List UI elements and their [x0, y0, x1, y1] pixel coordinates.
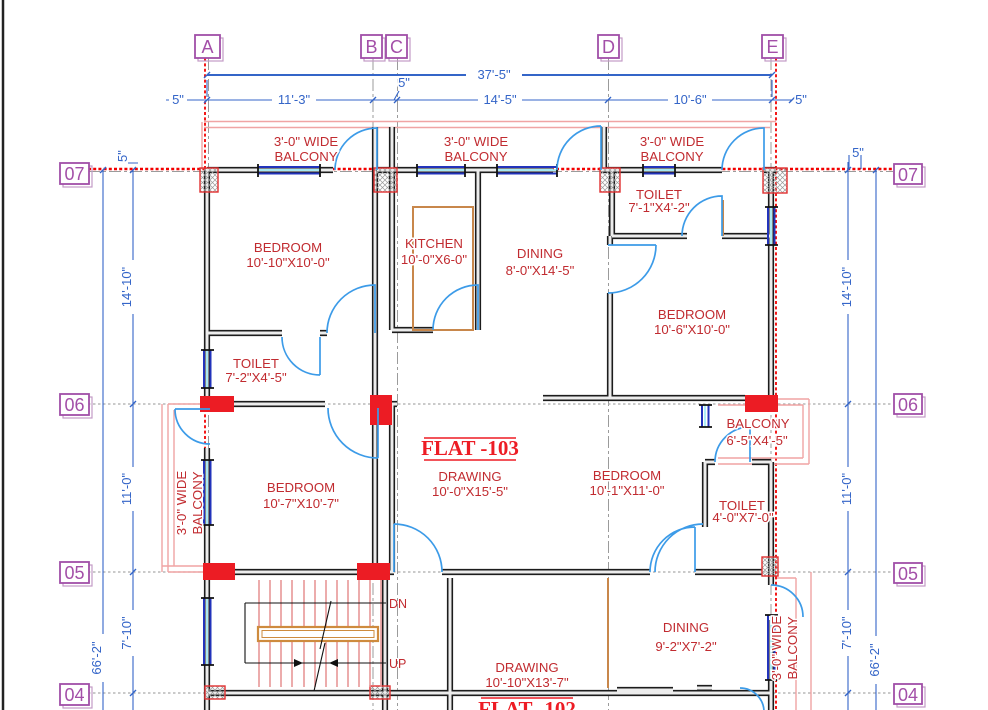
dim-10-6: 10'-6": [673, 92, 707, 107]
balcony-left-label2: BALCONY: [190, 471, 205, 534]
balcony-top-3-label2: BALCONY: [640, 149, 703, 164]
toilet-top-right-size: 7'-1"X4'-2": [628, 200, 690, 215]
column-d07-hatched: [600, 168, 620, 192]
balcony-top-1-label: 3'-0" WIDE: [274, 134, 339, 149]
toilet-left-name: TOILET: [233, 356, 279, 371]
flat-103-label: FLAT -103: [421, 436, 519, 460]
stair-arrow-left: [329, 659, 338, 667]
dining-top-name: DINING: [517, 246, 563, 261]
dim-left-7-10: 7'-10": [119, 616, 134, 650]
column-b04-hatched: [370, 686, 390, 699]
grid-label-04-left: 04: [64, 685, 84, 705]
dim-11-3: 11'-3": [278, 92, 311, 107]
toilet-mid-right-size: 4'-0"X7'-0": [712, 510, 774, 525]
stair-break-line: [314, 601, 331, 691]
bedroom-mid-left-name: BEDROOM: [267, 480, 335, 495]
bedroom-mid-left-size: 10'-7"X10'-7": [263, 496, 339, 511]
grid-label-a: A: [201, 37, 213, 57]
grid-marker-a: A: [195, 35, 223, 61]
column-balcony: [745, 395, 778, 412]
balcony-bottom-right-label: 3'-0" WIDE: [769, 616, 784, 681]
grid-label-e: E: [766, 37, 778, 57]
balcony-left-label: 3'-0" WIDE: [174, 471, 189, 536]
column-a07-hatched: [200, 168, 218, 192]
dim-5in-right-side: 5": [852, 145, 864, 160]
dim-5in-right: 5": [795, 92, 807, 107]
stair-handrail: [258, 627, 378, 641]
dining-top-size: 8'-0"X14'-5": [506, 263, 575, 278]
dim-5in-left-side: 5": [115, 150, 130, 162]
stair-up-label: UP: [389, 657, 406, 671]
grid-label-d: D: [602, 37, 615, 57]
column-e07-hatched: [763, 168, 787, 193]
grid-label-04-right: 04: [898, 685, 918, 705]
balcony-top-3-label: 3'-0" WIDE: [640, 134, 705, 149]
dim-right-14-10: 14'-10": [839, 266, 854, 307]
dim-right-7-10: 7'-10": [839, 616, 854, 650]
grid-label-07-right: 07: [898, 165, 918, 185]
bedroom-top-left-size: 10'-10"X10'-0": [246, 255, 330, 270]
bedroom-right-name: BEDROOM: [658, 307, 726, 322]
bedroom-mid-right-size: 10'-1"X11'-0": [589, 483, 664, 498]
grid-marker-row-right: 07 06 05 04: [894, 164, 925, 707]
stair-arrow-right: [294, 659, 303, 667]
floor-plan-canvas: DN UP 37'-5" 5" 11'-3" 5" 14'-5" 10'-6" …: [0, 0, 988, 710]
grid-label-c: C: [390, 37, 403, 57]
bedroom-mid-right-name: BEDROOM: [593, 468, 661, 483]
dim-overall-width: 37'-5": [477, 67, 511, 82]
grid-marker-row-left: 07 06 05 04: [60, 163, 92, 708]
dim-5in-left: 5": [172, 92, 184, 107]
grid-label-05-left: 05: [64, 563, 84, 583]
grid-label-b: B: [365, 37, 377, 57]
dim-left-14-10: 14'-10": [119, 266, 134, 307]
bedroom-right-size: 10'-6"X10'-0": [654, 322, 730, 337]
column-a04-hatched: [205, 686, 225, 699]
balcony-top-1-label2: BALCONY: [274, 149, 337, 164]
balcony-bottom-right-label2: BALCONY: [785, 616, 800, 679]
drawing-102-name: DRAWING: [495, 660, 558, 675]
column-b05: [357, 563, 390, 580]
grid-label-07-left: 07: [64, 164, 84, 184]
grid-marker-d: D: [598, 35, 622, 61]
balcony-top-2-label2: BALCONY: [444, 149, 507, 164]
dim-left-11-0: 11'-0": [119, 473, 134, 506]
dining-bottom-size: 9'-2"X7'-2": [655, 639, 717, 654]
dim-right-11-0: 11'-0": [839, 473, 854, 506]
toilet-left-size: 7'-2"X4'-5": [225, 370, 287, 385]
dim-14-5: 14'-5": [483, 92, 517, 107]
drawing-102-size: 10'-10"X13'-7": [485, 675, 569, 690]
grid-marker-b: B: [361, 35, 385, 61]
grid-label-05-right: 05: [898, 564, 918, 584]
kitchen-size: 10'-0"X6-0": [401, 252, 467, 267]
dim-left-overall-height: 66'-2": [89, 641, 104, 675]
column-a05: [203, 563, 235, 580]
drawing-103-size: 10'-0"X15'-5": [432, 484, 508, 499]
bedroom-top-left-name: BEDROOM: [254, 240, 322, 255]
column-bc07-hatched: [374, 168, 397, 192]
room-labels: 3'-0" WIDE BALCONY 3'-0" WIDE BALCONY 3'…: [174, 134, 800, 710]
grid-marker-c: C: [386, 35, 410, 61]
floor-plan-drawing: DN UP 37'-5" 5" 11'-3" 5" 14'-5" 10'-6" …: [0, 0, 988, 710]
column-b06: [370, 395, 392, 425]
grid-label-06-right: 06: [898, 395, 918, 415]
flat-102-label: FLAT -102: [478, 697, 576, 710]
dim-5in-bc: 5": [398, 75, 410, 90]
kitchen-name: KITCHEN: [405, 236, 463, 251]
column-e05-hatched: [762, 557, 778, 576]
drawing-103-name: DRAWING: [438, 469, 501, 484]
counter-outline: [413, 207, 473, 330]
balcony-top-2-label: 3'-0" WIDE: [444, 134, 509, 149]
balcony-right-size: 6'-5"X4'-5": [726, 433, 788, 448]
dining-bottom-name: DINING: [663, 620, 709, 635]
grid-marker-e: E: [762, 35, 786, 61]
grid-label-06-left: 06: [64, 395, 84, 415]
dim-right-overall-height: 66'-2": [867, 643, 882, 677]
stair-dn-label: DN: [389, 597, 407, 611]
balcony-right-name: BALCONY: [726, 416, 789, 431]
tan-partition: [608, 200, 723, 688]
dim-ticks: [100, 72, 879, 696]
